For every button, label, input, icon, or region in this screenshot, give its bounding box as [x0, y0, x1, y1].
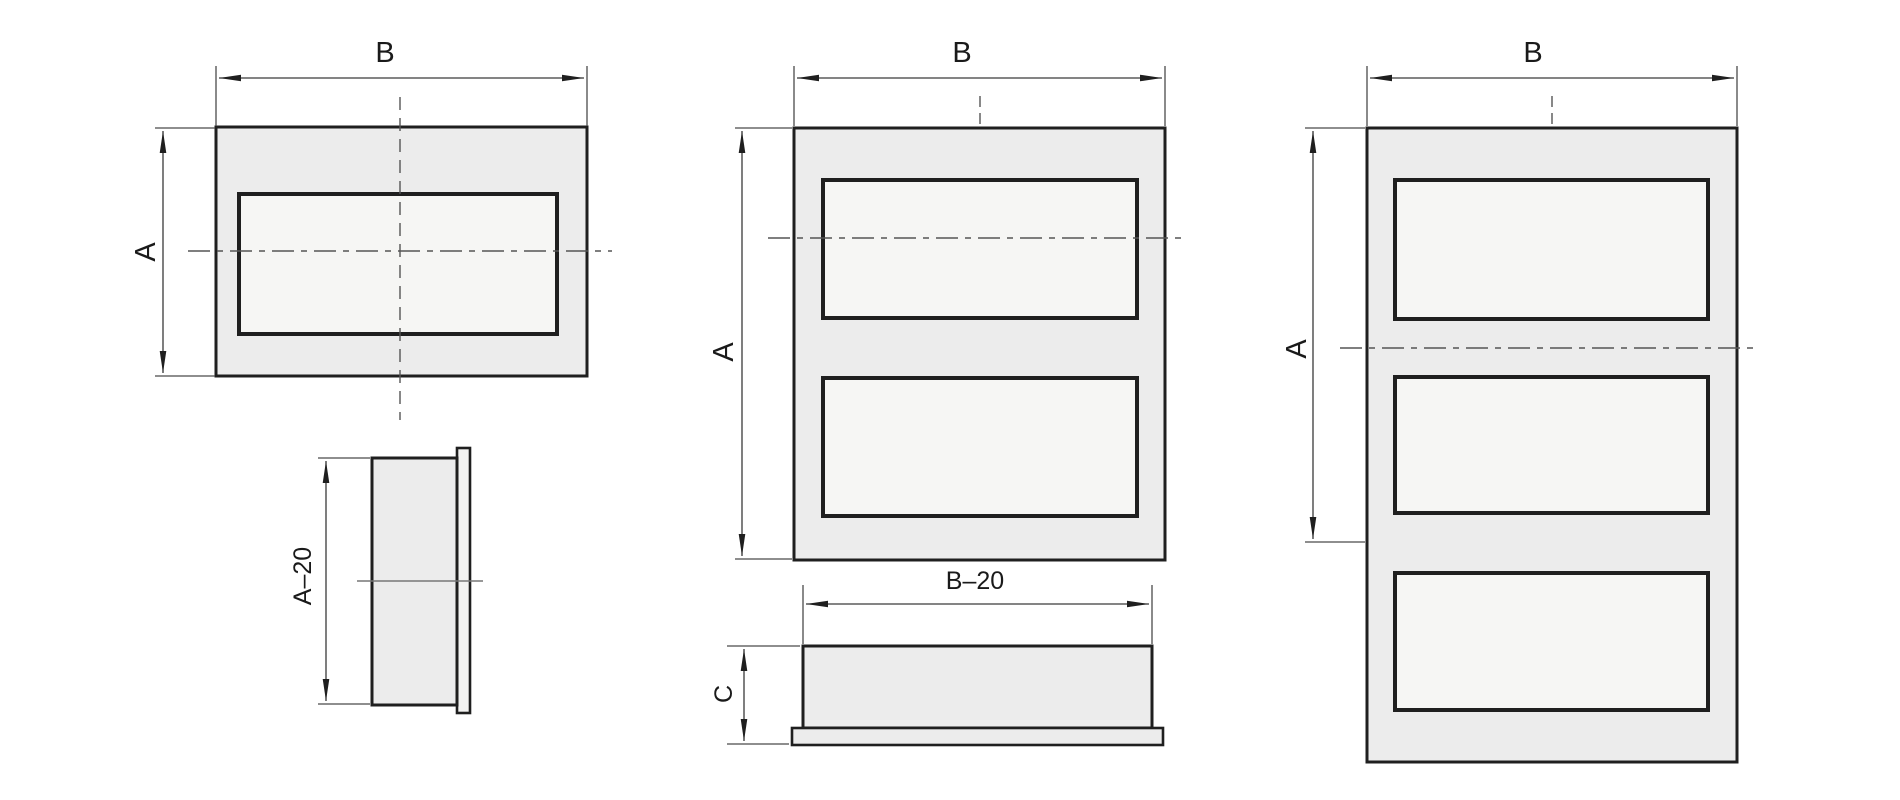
double-side-view: B–20 C — [710, 567, 1163, 745]
double-side-base-flange — [792, 728, 1163, 745]
technical-drawing-canvas: B A A–20 B A — [0, 0, 1900, 800]
dimension-label-a: A — [708, 342, 740, 362]
dimension-label-a: A — [130, 242, 162, 262]
double-front-cutout-2 — [823, 378, 1137, 516]
triple-front-view: B A — [1281, 37, 1755, 762]
dimension-label-a-minus-20: A–20 — [289, 547, 317, 605]
dimension-label-a: A — [1281, 339, 1313, 359]
double-side-body — [803, 646, 1152, 728]
dimension-label-b: B — [952, 37, 971, 69]
triple-front-cutout-1 — [1395, 180, 1708, 319]
double-front-cutout-1 — [823, 180, 1137, 318]
single-front-view: B A — [130, 37, 612, 420]
double-front-view: B A — [708, 37, 1185, 560]
triple-front-cutout-3 — [1395, 573, 1708, 710]
triple-front-cutout-2 — [1395, 377, 1708, 513]
single-front-cutout — [239, 194, 557, 334]
drawing-sheet: B A A–20 B A — [0, 0, 1900, 800]
dimension-label-b: B — [375, 37, 394, 69]
dimension-label-b: B — [1523, 37, 1542, 69]
dimension-label-c: C — [710, 685, 738, 703]
single-side-view: A–20 — [289, 448, 483, 713]
dimension-label-b-minus-20: B–20 — [946, 567, 1004, 595]
